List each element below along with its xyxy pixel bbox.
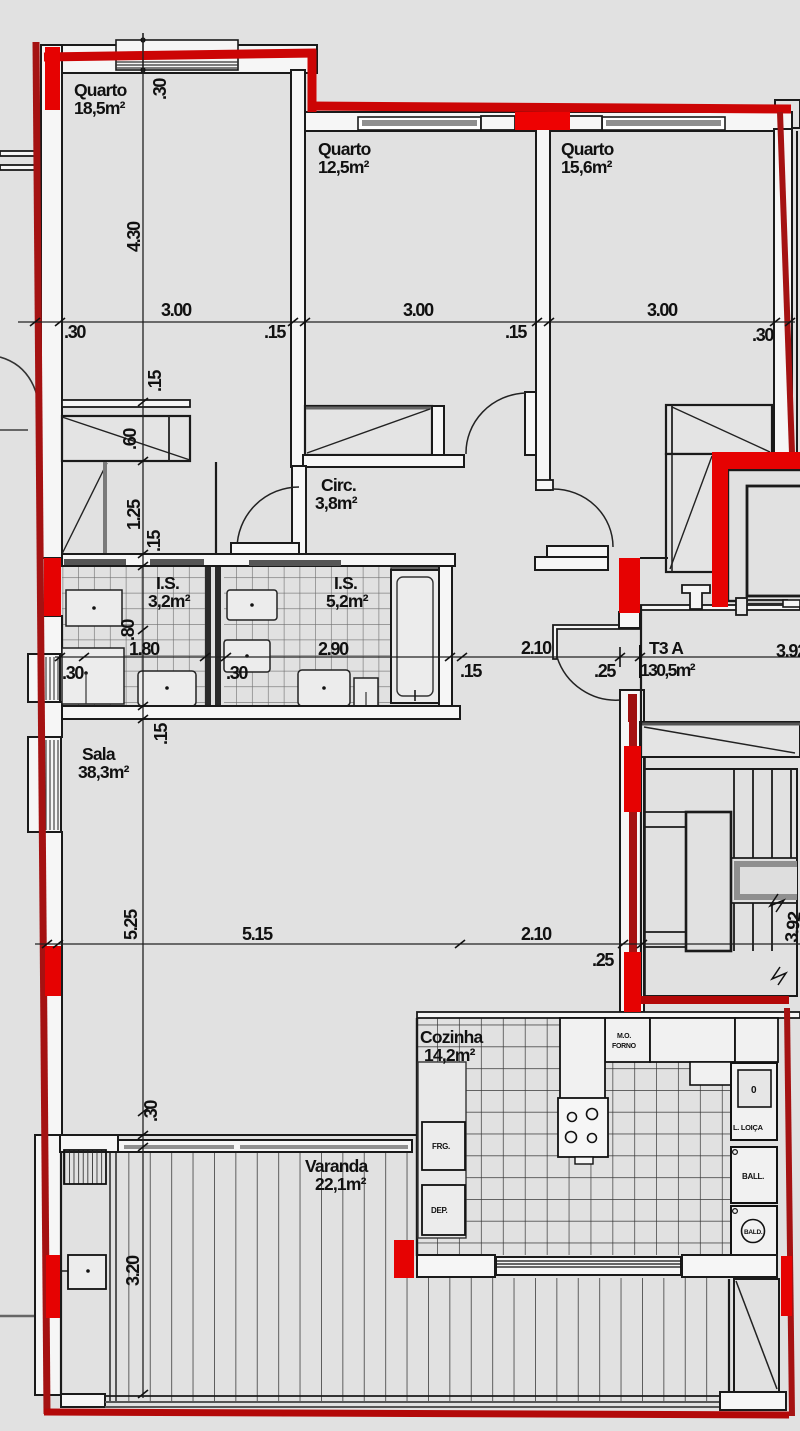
svg-text:18,5m²: 18,5m² bbox=[74, 98, 126, 118]
svg-text:DEP.: DEP. bbox=[431, 1206, 448, 1215]
svg-text:T3 A: T3 A bbox=[649, 638, 684, 658]
svg-text:.15: .15 bbox=[144, 530, 164, 552]
svg-text:.25: .25 bbox=[594, 661, 616, 681]
svg-text:Quarto: Quarto bbox=[318, 139, 371, 159]
svg-text:.60: .60 bbox=[120, 428, 140, 450]
svg-text:1.80: 1.80 bbox=[129, 639, 160, 659]
svg-text:BALL.: BALL. bbox=[742, 1172, 764, 1181]
svg-text:12,5m²: 12,5m² bbox=[318, 157, 370, 177]
svg-text:14,2m²: 14,2m² bbox=[424, 1045, 476, 1065]
svg-text:1.25: 1.25 bbox=[124, 499, 144, 530]
svg-text:.15: .15 bbox=[460, 661, 482, 681]
svg-text:4.30: 4.30 bbox=[124, 221, 144, 252]
svg-text:130,5m²: 130,5m² bbox=[640, 660, 696, 680]
svg-text:5.15: 5.15 bbox=[242, 924, 273, 944]
svg-text:Quarto: Quarto bbox=[561, 139, 614, 159]
svg-text:3.92: 3.92 bbox=[781, 910, 800, 943]
svg-text:.30: .30 bbox=[64, 322, 86, 342]
svg-text:3.20: 3.20 bbox=[123, 1255, 143, 1286]
svg-text:Quarto: Quarto bbox=[74, 80, 127, 100]
svg-text:FORNO: FORNO bbox=[612, 1043, 637, 1050]
svg-text:.15: .15 bbox=[145, 370, 165, 392]
svg-text:Varanda: Varanda bbox=[305, 1156, 369, 1176]
svg-text:.15: .15 bbox=[264, 322, 286, 342]
svg-text:BALD.: BALD. bbox=[744, 1229, 763, 1236]
svg-text:Cozinha: Cozinha bbox=[420, 1027, 484, 1047]
svg-text:.30: .30 bbox=[752, 325, 774, 345]
svg-text:3.00: 3.00 bbox=[647, 300, 678, 320]
svg-text:.30: .30 bbox=[62, 663, 84, 683]
svg-text:.30: .30 bbox=[141, 1100, 161, 1122]
svg-text:15,6m²: 15,6m² bbox=[561, 157, 613, 177]
svg-text:FRG.: FRG. bbox=[432, 1142, 450, 1151]
svg-text:3.92: 3.92 bbox=[776, 641, 800, 661]
svg-text:I.S.: I.S. bbox=[156, 573, 179, 593]
svg-text:22,1m²: 22,1m² bbox=[315, 1174, 367, 1194]
svg-text:M.O.: M.O. bbox=[617, 1033, 631, 1040]
svg-text:0: 0 bbox=[751, 1085, 757, 1096]
svg-text:3,2m²: 3,2m² bbox=[148, 591, 191, 611]
svg-text:.80: .80 bbox=[118, 619, 138, 641]
svg-text:5,2m²: 5,2m² bbox=[326, 591, 369, 611]
svg-text:5.25: 5.25 bbox=[121, 909, 141, 940]
svg-text:.15: .15 bbox=[505, 322, 527, 342]
svg-text:.15: .15 bbox=[151, 723, 171, 745]
svg-text:2.10: 2.10 bbox=[521, 638, 552, 658]
svg-text:3,8m²: 3,8m² bbox=[315, 493, 358, 513]
svg-text:.30: .30 bbox=[226, 663, 248, 683]
svg-text:3.00: 3.00 bbox=[161, 300, 192, 320]
svg-text:Sala: Sala bbox=[82, 744, 116, 764]
svg-text:.25: .25 bbox=[592, 950, 614, 970]
svg-text:I.S.: I.S. bbox=[334, 573, 357, 593]
svg-text:.30: .30 bbox=[150, 78, 170, 100]
svg-text:38,3m²: 38,3m² bbox=[78, 762, 130, 782]
svg-text:2.10: 2.10 bbox=[521, 924, 552, 944]
svg-text:Circ.: Circ. bbox=[321, 475, 356, 495]
svg-text:L. LOIÇA: L. LOIÇA bbox=[733, 1123, 764, 1132]
svg-text:2.90: 2.90 bbox=[318, 639, 349, 659]
svg-text:3.00: 3.00 bbox=[403, 300, 434, 320]
